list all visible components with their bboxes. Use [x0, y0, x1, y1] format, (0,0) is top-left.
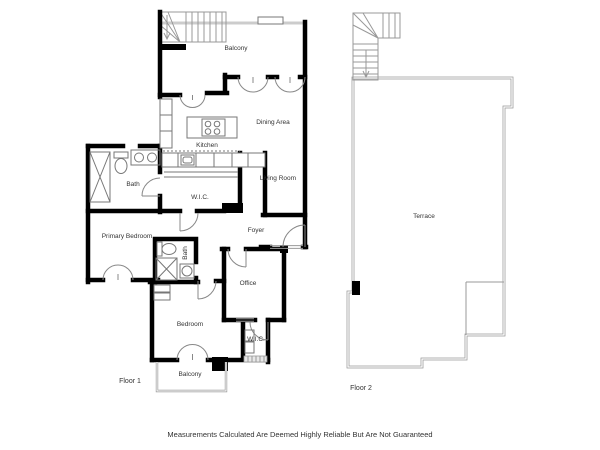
wic2-vent: [244, 356, 267, 362]
office-door: [228, 249, 246, 267]
sink-fixture-2: [180, 264, 194, 278]
label-bedroom: Bedroom: [177, 321, 203, 328]
terrace-outline: [348, 78, 512, 367]
label-wic1: W.I.C.: [191, 194, 209, 201]
label-living-room: Living Room: [260, 175, 296, 182]
floor2-plan: Terrace Floor 2: [348, 13, 512, 392]
toilet-fixture-2: [157, 242, 176, 256]
primary-bedroom-french-door: [103, 265, 133, 280]
double-vanity-fixture: [131, 150, 160, 165]
stairs-floor1: [160, 12, 226, 42]
kitchen-fixtures: [160, 99, 265, 167]
bath1-door: [142, 178, 160, 196]
bedroom-door: [198, 281, 216, 299]
disclaimer-text: Measurements Calculated Are Deemed Highl…: [167, 430, 432, 439]
stair-direction-arrow-2: [363, 50, 369, 77]
shower-fixture-2: [156, 258, 177, 280]
label-bath2: Bath: [182, 246, 189, 260]
wic1-door: [180, 213, 198, 231]
label-primary-bedroom: Primary Bedroom: [102, 233, 153, 240]
label-terrace: Terrace: [413, 213, 435, 220]
bedroom-closet-shelves: [154, 285, 170, 300]
toilet-fixture: [114, 152, 128, 174]
label-foyer: Foyer: [248, 227, 265, 234]
floor1-plan: Balcony Dining Area Kitchen Living Room …: [88, 12, 306, 391]
label-balcony-top: Balcony: [224, 45, 248, 52]
floor1-walls: [88, 12, 306, 371]
label-bath1: Bath: [126, 181, 140, 188]
label-balcony-bottom: Balcony: [178, 371, 202, 378]
kitchen-cabinets-left: [160, 99, 172, 148]
balcony-railing-top: [162, 17, 305, 24]
entry-door: [283, 225, 305, 247]
planter-window: [258, 17, 283, 24]
terrace-door-block: [352, 281, 360, 295]
label-floor1: Floor 1: [119, 378, 141, 385]
floorplan-canvas: Balcony Dining Area Kitchen Living Room …: [0, 0, 600, 450]
label-kitchen: Kitchen: [196, 142, 218, 149]
balcony-french-door-left: [238, 77, 268, 92]
wic1-closet-rods: [164, 172, 238, 177]
label-wic2: W.I.C.: [247, 336, 265, 343]
primary-bath-fixtures: [90, 150, 160, 202]
kitchen-french-door: [180, 95, 205, 108]
floorplan-page: Balcony Dining Area Kitchen Living Room …: [0, 0, 600, 450]
label-floor2: Floor 2: [350, 385, 372, 392]
bedroom-french-door: [177, 345, 208, 361]
kitchen-island: [187, 117, 237, 138]
label-dining-area: Dining Area: [256, 119, 290, 126]
label-office: Office: [240, 280, 257, 287]
shower-fixture: [90, 152, 110, 202]
stairs-floor2: [353, 13, 400, 80]
